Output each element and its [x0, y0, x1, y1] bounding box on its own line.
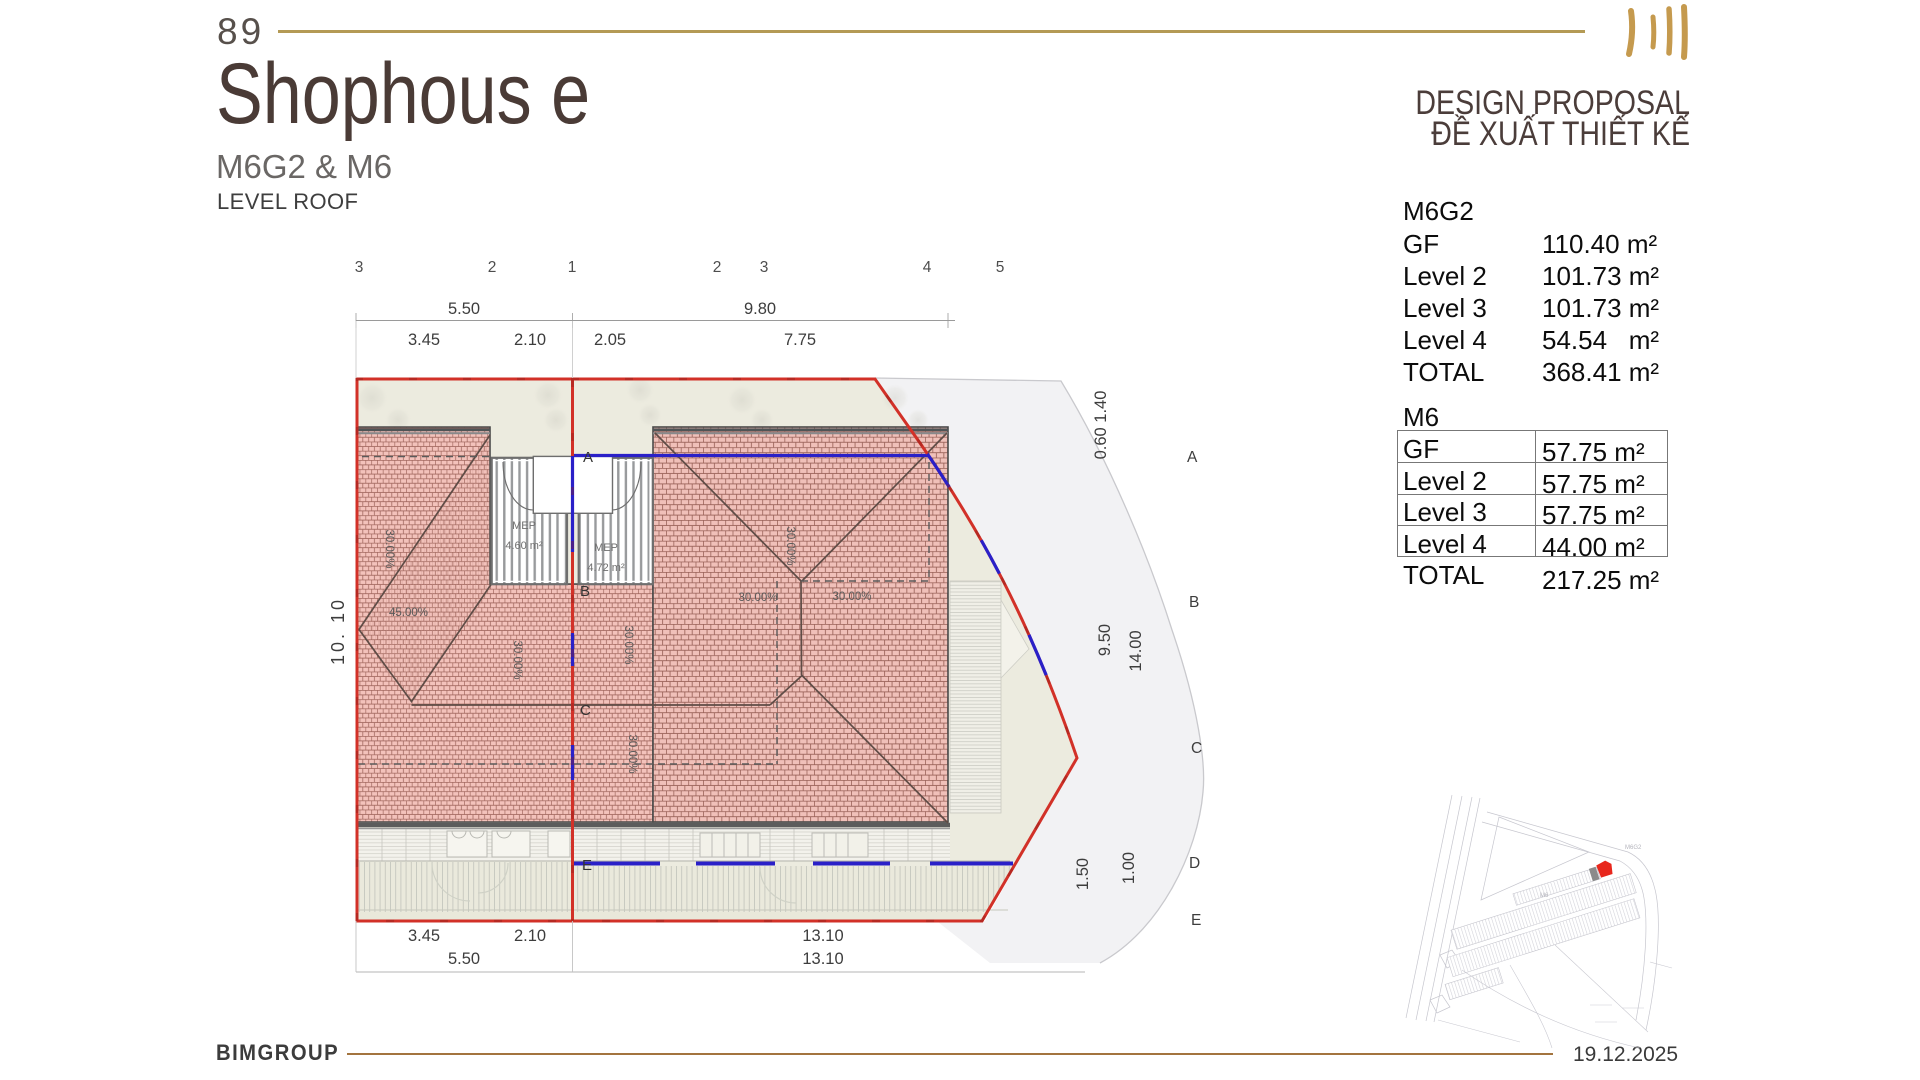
svg-text:B: B	[580, 583, 590, 600]
svg-text:2: 2	[713, 259, 722, 276]
svg-text:9.80: 9.80	[744, 300, 776, 318]
svg-text:D: D	[1189, 855, 1200, 872]
svg-text:1.50: 1.50	[1074, 858, 1092, 890]
svg-text:5.50: 5.50	[448, 950, 480, 968]
svg-text:3: 3	[355, 259, 364, 276]
svg-text:B: B	[1189, 594, 1199, 611]
svg-text:MEP: MEP	[512, 520, 536, 532]
svg-text:C: C	[580, 702, 591, 719]
svg-text:5.50: 5.50	[448, 300, 480, 318]
svg-text:0.60 1.40: 0.60 1.40	[1092, 391, 1110, 460]
svg-text:3.45: 3.45	[408, 331, 440, 349]
svg-text:E: E	[582, 857, 592, 874]
svg-text:2.05: 2.05	[594, 331, 626, 349]
svg-text:13.10: 13.10	[802, 950, 843, 968]
svg-text:5: 5	[996, 259, 1005, 276]
svg-text:4: 4	[923, 259, 932, 276]
svg-text:30.00%: 30.00%	[784, 526, 796, 565]
svg-text:9.50: 9.50	[1096, 624, 1114, 656]
svg-text:1: 1	[568, 259, 577, 276]
svg-text:M6: M6	[1540, 893, 1549, 899]
svg-text:2.10: 2.10	[514, 927, 546, 945]
svg-text:7.75: 7.75	[784, 331, 816, 349]
svg-text:4.60 m²: 4.60 m²	[505, 540, 543, 552]
svg-text:2: 2	[488, 259, 497, 276]
svg-text:30.00%: 30.00%	[622, 625, 634, 664]
svg-text:C: C	[1191, 740, 1202, 757]
svg-text:30.00%: 30.00%	[738, 592, 777, 604]
svg-text:2.10: 2.10	[514, 331, 546, 349]
svg-text:A: A	[583, 449, 593, 466]
svg-text:E: E	[1191, 912, 1201, 929]
svg-text:3.45: 3.45	[408, 927, 440, 945]
svg-text:30.00%: 30.00%	[832, 591, 871, 603]
svg-text:MEP: MEP	[594, 542, 618, 554]
svg-text:1.00: 1.00	[1120, 852, 1138, 884]
svg-text:14.00: 14.00	[1127, 630, 1145, 671]
svg-text:A: A	[1187, 449, 1198, 466]
svg-text:3: 3	[760, 259, 769, 276]
svg-text:13.10: 13.10	[802, 927, 843, 945]
svg-text:M6G2: M6G2	[1625, 845, 1642, 851]
svg-text:10. 10: 10. 10	[328, 597, 348, 665]
svg-text:30.00%: 30.00%	[626, 734, 638, 773]
svg-text:4.72 m²: 4.72 m²	[587, 562, 625, 574]
svg-text:45.00%: 45.00%	[389, 607, 428, 619]
svg-text:30.00%: 30.00%	[511, 640, 523, 679]
svg-text:30.00%: 30.00%	[383, 529, 395, 568]
